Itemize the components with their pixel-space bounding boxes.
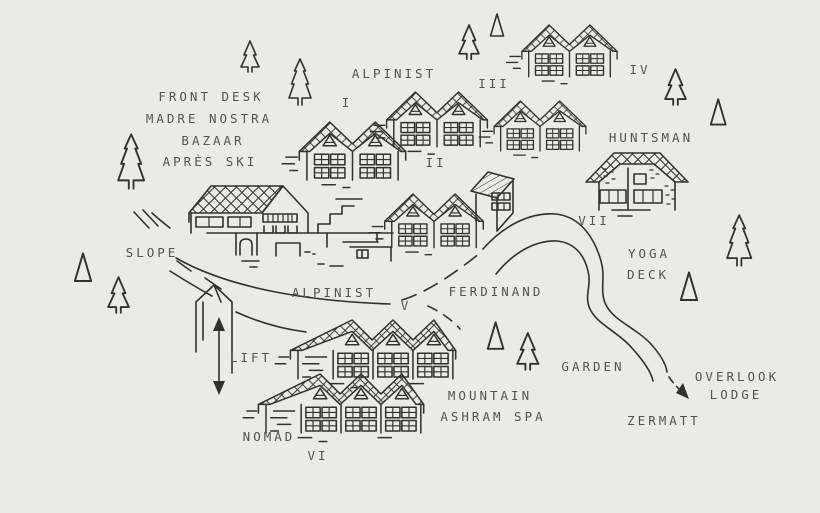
- label-zermatt: ZERMATT: [627, 413, 701, 428]
- building-i: [282, 122, 406, 188]
- fir-tree-icon: [289, 59, 311, 105]
- fir-tree-icon: [727, 215, 751, 266]
- label-numeral-iii: III: [478, 76, 510, 91]
- label-numeral-i: I: [342, 95, 353, 110]
- pine-tree-icon: [241, 41, 259, 72]
- label-madre-nostra: MADRE NOSTRA: [146, 111, 272, 126]
- lift-pylon: [196, 285, 232, 395]
- label-slope: SLOPE: [126, 245, 179, 260]
- label-yoga: YOGA: [628, 246, 670, 261]
- resort-map: FRONT DESK MADRE NOSTRA BAZAAR APRÈS SKI…: [0, 0, 820, 513]
- ski-slope-marks: [134, 210, 170, 228]
- label-huntsman: HUNTSMAN: [609, 130, 693, 145]
- label-lift: LIFT: [230, 350, 272, 365]
- label-nomad: NOMAD: [243, 429, 296, 444]
- building-vi-upper: [275, 320, 456, 387]
- building-v: [369, 194, 483, 255]
- building-ii: [370, 92, 487, 154]
- label-numeral-iv: IV: [629, 62, 650, 77]
- label-apres-ski: APRÈS SKI: [163, 154, 258, 169]
- pine-tree-icon: [665, 69, 686, 105]
- small-tree-icon: [491, 14, 504, 36]
- road-arrowhead-icon: [676, 383, 689, 399]
- label-numeral-vii: VII: [578, 213, 610, 228]
- small-tree-icon: [488, 322, 504, 348]
- label-numeral-ii: II: [425, 155, 446, 170]
- label-overlook: OVERLOOK: [695, 369, 779, 384]
- resort-map-canvas: FRONT DESK MADRE NOSTRA BAZAAR APRÈS SKI…: [0, 0, 820, 513]
- label-alpinist-path: ALPINIST: [292, 285, 376, 300]
- label-deck: DECK: [627, 267, 669, 282]
- label-alpinist-upper: ALPINIST: [352, 66, 436, 81]
- alpinist-trail-lower: [170, 271, 306, 332]
- pine-tree-icon: [108, 277, 129, 313]
- label-bazaar: BAZAAR: [181, 133, 244, 148]
- label-numeral-v: V: [401, 298, 412, 313]
- small-tree-icon: [711, 99, 726, 124]
- label-numeral-vi: VI: [307, 448, 328, 463]
- label-ferdinand: FERDINAND: [449, 284, 544, 299]
- pine-tree-icon: [459, 25, 479, 59]
- lift-arrow-down-icon: [213, 381, 225, 395]
- label-mountain: MOUNTAIN: [448, 388, 532, 403]
- label-front-desk: FRONT DESK: [158, 89, 263, 104]
- building-shed: [471, 172, 514, 231]
- building-iv: [507, 25, 617, 84]
- building-main-lodge: [189, 186, 393, 267]
- building-vii-huntsman: [586, 153, 688, 216]
- trails: [134, 210, 480, 332]
- fir-tree-icon: [118, 134, 144, 188]
- label-garden: GARDEN: [561, 359, 624, 374]
- small-tree-icon: [75, 254, 91, 282]
- pine-tree-icon: [517, 333, 538, 370]
- small-tree-icon: [681, 273, 697, 301]
- label-lodge: LODGE: [710, 387, 763, 402]
- label-ashram-spa: ASHRAM SPA: [440, 409, 545, 424]
- lift-arrow-up-icon: [213, 317, 225, 331]
- building-iii: [479, 101, 586, 158]
